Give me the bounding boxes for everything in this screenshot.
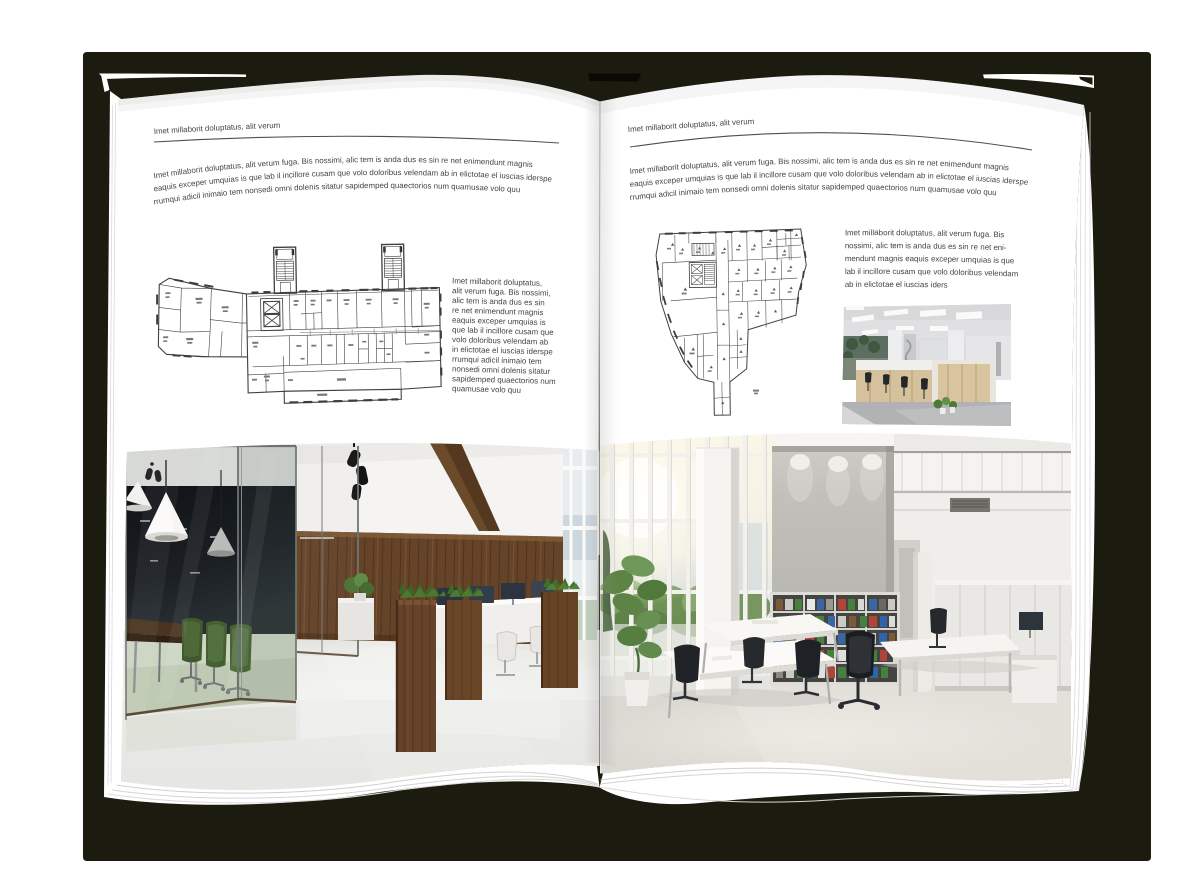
svg-text:quamusae volo quu: quamusae volo quu: [452, 384, 521, 395]
